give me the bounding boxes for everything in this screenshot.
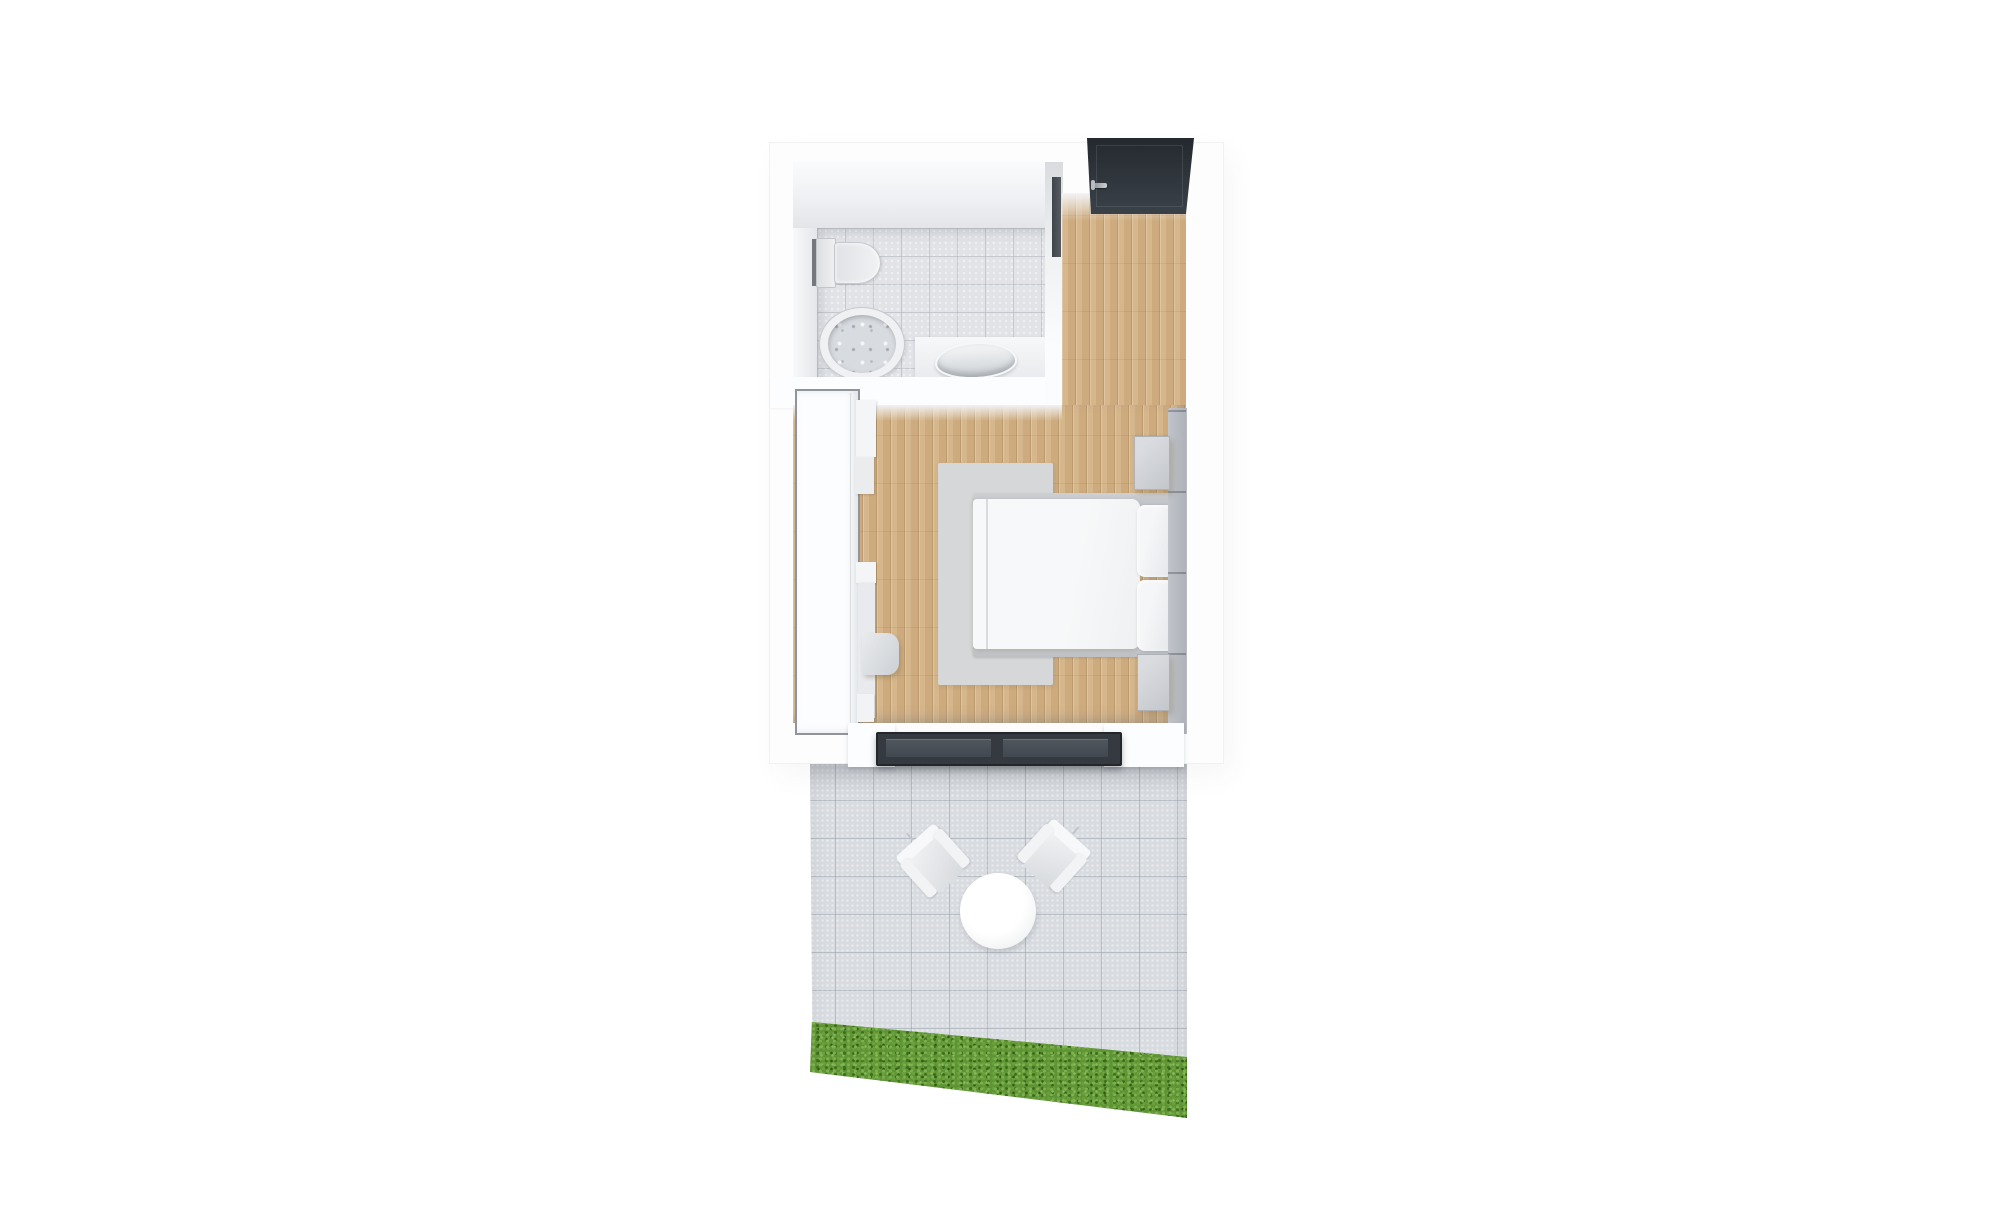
tub-basin: [828, 315, 896, 373]
round-shower-tub: [819, 307, 905, 381]
bathroom-sliding-door: [1052, 177, 1061, 257]
shelf-unit: [855, 457, 874, 494]
toilet: [834, 242, 881, 284]
nightstand: [1134, 436, 1170, 490]
floor-plan-canvas: [0, 0, 2000, 1225]
entrance-door: [1087, 138, 1194, 214]
toilet-cistern: [816, 238, 836, 288]
sliding-door-panel: [886, 739, 991, 757]
low-cabinet: [857, 694, 874, 722]
double-bed: [973, 499, 1140, 649]
entry-wood-floor: [1062, 193, 1186, 407]
nightstand: [1137, 654, 1170, 711]
headboard: [1168, 408, 1187, 734]
sliding-door-panel: [1003, 739, 1108, 757]
door-handle: [1092, 183, 1107, 188]
bathroom-wall-face-top: [793, 162, 1045, 230]
outdoor-table: [960, 873, 1036, 949]
desk-chair: [862, 633, 899, 675]
sliding-glass-door: [876, 732, 1122, 766]
shelf-unit: [856, 400, 876, 457]
wardrobe: [795, 389, 860, 735]
suite-unit: [770, 143, 1223, 763]
desk: [856, 562, 876, 583]
